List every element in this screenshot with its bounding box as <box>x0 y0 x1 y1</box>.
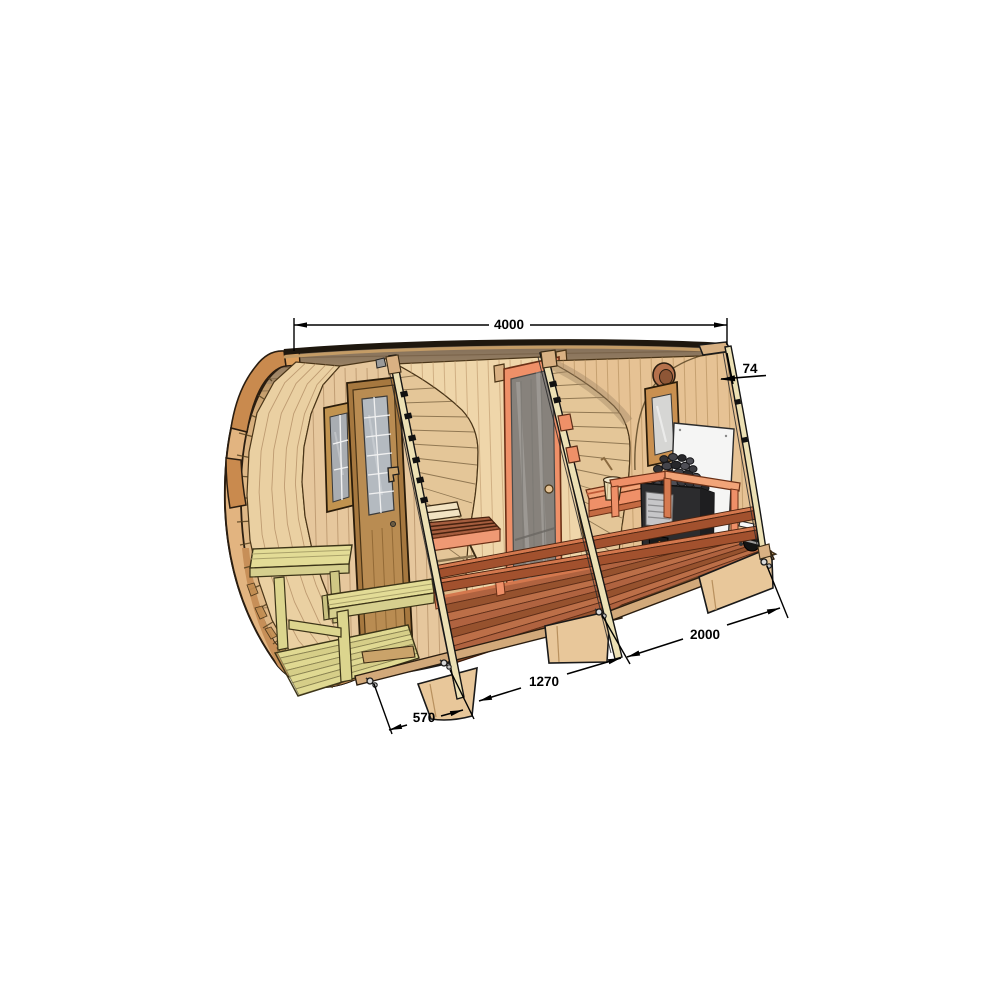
svg-text:2000: 2000 <box>690 627 720 642</box>
svg-text:570: 570 <box>413 710 436 725</box>
svg-text:74: 74 <box>742 361 758 376</box>
svg-text:1270: 1270 <box>529 674 559 689</box>
svg-text:4000: 4000 <box>494 317 524 332</box>
